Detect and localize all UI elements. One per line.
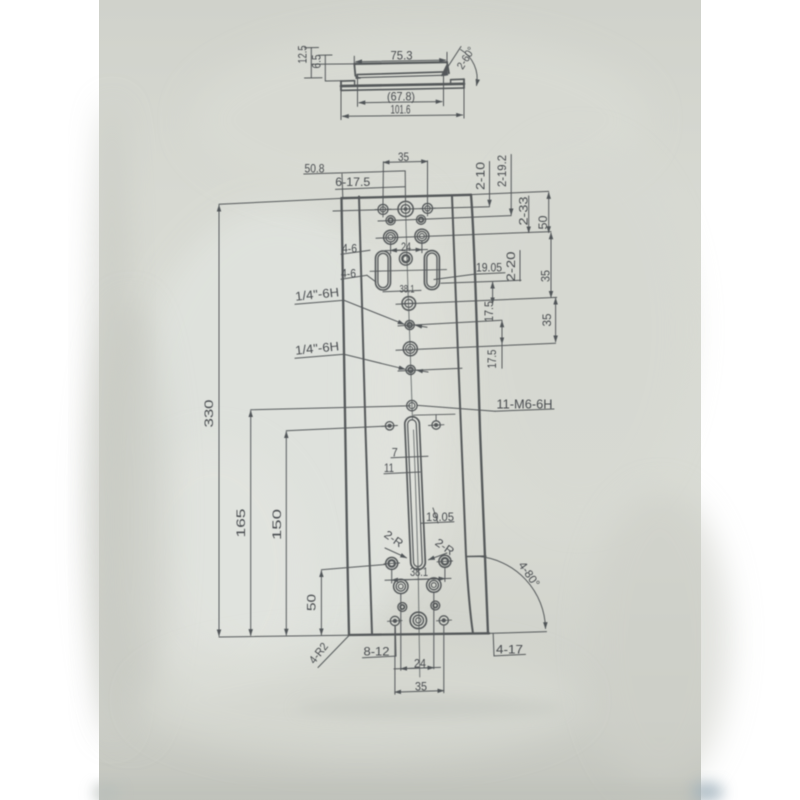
svg-text:6.5: 6.5: [312, 55, 324, 69]
svg-text:330: 330: [202, 399, 216, 427]
svg-text:6-17.5: 6-17.5: [335, 177, 370, 189]
svg-text:17.5: 17.5: [487, 350, 499, 369]
svg-text:75.3: 75.3: [391, 51, 413, 63]
svg-text:50: 50: [538, 216, 550, 230]
svg-text:17.5: 17.5: [484, 301, 496, 322]
svg-text:50.8: 50.8: [305, 164, 325, 176]
svg-text:2-33: 2-33: [519, 197, 531, 226]
svg-text:150: 150: [270, 509, 284, 540]
svg-text:35: 35: [542, 314, 554, 327]
svg-text:101.6: 101.6: [391, 105, 411, 117]
svg-text:12.5: 12.5: [298, 46, 310, 64]
svg-text:4-6: 4-6: [342, 244, 357, 256]
svg-text:4-17: 4-17: [496, 643, 523, 657]
svg-text:50: 50: [304, 594, 318, 611]
svg-text:2-19.2: 2-19.2: [497, 155, 509, 187]
svg-text:35: 35: [398, 152, 409, 164]
svg-text:11-M6-6H: 11-M6-6H: [497, 398, 553, 412]
svg-text:(67.8): (67.8): [387, 89, 415, 103]
svg-text:19.05: 19.05: [476, 261, 502, 275]
svg-text:2-10: 2-10: [476, 162, 488, 190]
svg-text:165: 165: [234, 508, 248, 537]
svg-text:24: 24: [414, 659, 427, 671]
svg-text:35: 35: [540, 270, 552, 282]
svg-text:7: 7: [392, 448, 398, 460]
svg-text:38.1: 38.1: [400, 284, 415, 296]
svg-text:11: 11: [384, 463, 394, 475]
svg-text:2-20: 2-20: [506, 252, 518, 282]
svg-text:24: 24: [401, 242, 411, 254]
svg-text:4-6: 4-6: [341, 269, 356, 281]
svg-text:8-12: 8-12: [364, 645, 390, 659]
svg-text:19.05: 19.05: [426, 510, 454, 524]
svg-text:35: 35: [415, 681, 427, 693]
svg-text:38.1: 38.1: [410, 567, 428, 579]
